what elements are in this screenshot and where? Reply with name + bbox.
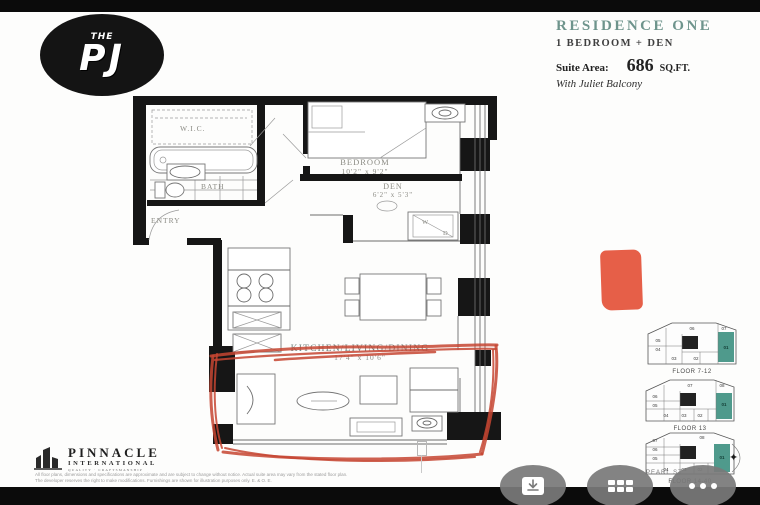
suite-area-unit: SQ.FT.: [660, 63, 690, 74]
den-dims: 6'2" x 5'3": [373, 191, 413, 199]
unit-number: 06: [652, 447, 658, 452]
title-block: RESIDENCE ONE 1 BEDROOM + DEN Suite Area…: [556, 18, 756, 90]
dryer-label: D: [443, 230, 449, 237]
residence-type: 1 BEDROOM + DEN: [556, 38, 756, 49]
developer-name-line2: INTERNATIONAL: [68, 460, 160, 467]
den-mark: [377, 201, 397, 211]
top-letterbox-bar: [0, 0, 760, 12]
keyplan-floor-13: 07 06 05 04 03 02 08 01 FLOOR 13: [636, 375, 748, 433]
orange-marker-annotation: [600, 249, 643, 310]
unit-number: 05: [652, 456, 658, 461]
unit-number: 07: [687, 383, 693, 388]
unit-number: 08: [699, 435, 705, 440]
floorplan-drawing: W.I.C. BATH ENTRY BEDROOM 10'2" x 9'2" D…: [125, 88, 505, 463]
suite-area-label: Suite Area:: [556, 62, 609, 74]
unit-number: 07: [652, 438, 658, 443]
pj-logo: THE PJ: [40, 14, 164, 96]
unit-number: 02: [697, 413, 703, 418]
armchair: [360, 376, 397, 404]
highlighted-unit-number: 01: [719, 455, 725, 460]
sofa: [410, 368, 458, 412]
wic-label: W.I.C.: [180, 124, 206, 133]
ceiling-vent-top: [425, 104, 465, 122]
unit-number: 06: [689, 326, 695, 331]
unit-number: 03: [671, 356, 677, 361]
grid-icon: [608, 480, 633, 492]
tv-console: [237, 374, 275, 424]
compass-icon: ✦: [729, 451, 738, 464]
unit-number: 06: [652, 394, 658, 399]
bedroom-dims: 10'2" x 9'2": [341, 167, 388, 176]
unit-number: 07: [721, 326, 727, 331]
floorplan-page: THE PJ RESIDENCE ONE 1 BEDROOM + DEN Sui…: [0, 0, 760, 505]
unit-number: 04: [663, 413, 669, 418]
washer-dryer: [408, 212, 458, 240]
ottoman: [350, 418, 402, 436]
apps-grid-button[interactable]: [587, 465, 653, 505]
den-label: DEN: [383, 182, 402, 191]
balcony-note: With Juliet Balcony: [556, 78, 756, 90]
unit-number: 05: [655, 338, 661, 343]
toilet: [155, 182, 184, 198]
more-options-button[interactable]: [670, 465, 736, 505]
developer-logo: PINNACLE INTERNATIONAL QUALITY · CRAFTSM…: [34, 446, 160, 472]
download-button[interactable]: [500, 465, 566, 505]
unit-number: 08: [719, 383, 725, 388]
washer-label: W: [422, 219, 429, 226]
highlighted-unit-number: 01: [723, 345, 729, 350]
suite-area-line: Suite Area: 686 SQ.FT.: [556, 55, 756, 76]
more-icon: [689, 483, 717, 489]
residence-title: RESIDENCE ONE: [556, 18, 756, 35]
ceiling-vent-bottom: [412, 416, 442, 431]
bedroom-label: BEDROOM: [340, 157, 390, 167]
unit-number: 04: [655, 347, 661, 352]
bath-label: BATH: [201, 182, 225, 191]
pinnacle-building-icon: [34, 446, 62, 470]
developer-name: PINNACLE: [68, 446, 160, 459]
entry-label: ENTRY: [151, 216, 181, 225]
keyplan-floor-7-12: 06 05 04 03 02 07 01 FLOOR 7-12: [638, 318, 750, 376]
highlighted-unit-number: 01: [721, 402, 727, 407]
unit-number: 02: [693, 356, 699, 361]
bed: [308, 102, 426, 158]
bath-sink: [167, 164, 205, 180]
photo-crease-artifact: [417, 441, 427, 456]
download-icon: [520, 476, 546, 496]
dining-table: [345, 274, 441, 320]
logo-pj-text: PJ: [79, 38, 125, 79]
unit-number: 05: [652, 403, 658, 408]
unit-number: 03: [681, 413, 687, 418]
kitchen-cabinets: [228, 248, 290, 330]
suite-area-value: 686: [627, 55, 654, 75]
